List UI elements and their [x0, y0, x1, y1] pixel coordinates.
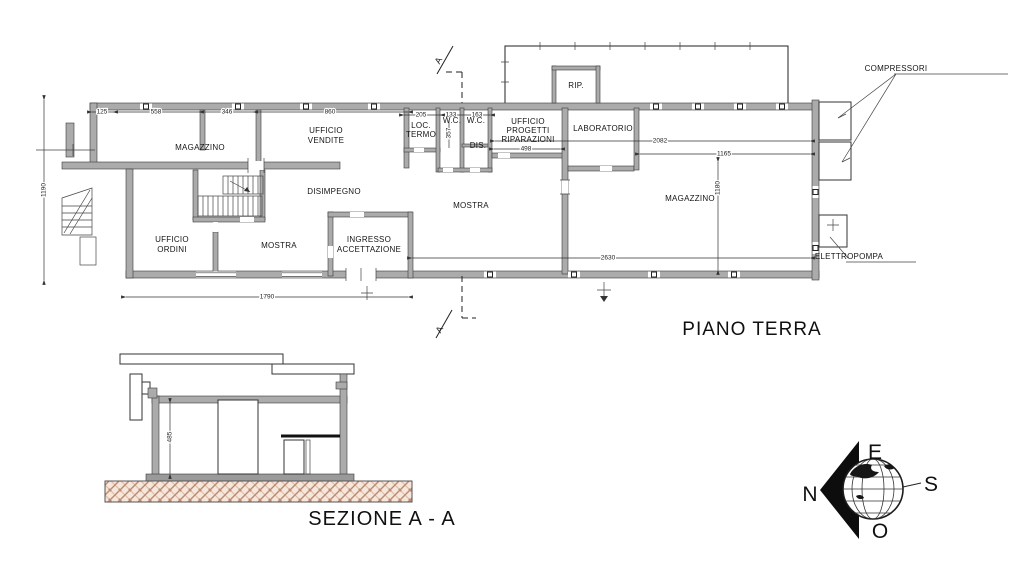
compass-globe	[843, 459, 921, 519]
dim-1180: 1180	[715, 181, 722, 195]
drawing-canvas: A A 125 558 346 860 205 133 163 357 498	[0, 0, 1024, 580]
survey-marks	[361, 282, 611, 302]
dim-1790: 1790	[260, 294, 275, 301]
section-cut-line: A A	[433, 46, 476, 338]
label-elettropompa: ELETTROPOMPA	[815, 252, 884, 261]
compass-east: E	[868, 441, 882, 464]
compass-west: O	[872, 520, 888, 543]
dim-2630: 2630	[601, 255, 616, 262]
dim-205: 205	[416, 112, 427, 119]
label-magazzino-right: MAGAZZINO	[665, 194, 715, 203]
label-magazzino-left: MAGAZZINO	[175, 143, 225, 152]
compass-north: N	[802, 483, 817, 506]
dim-125: 125	[97, 109, 108, 116]
section-title: SEZIONE A - A	[308, 508, 456, 530]
label-uff-progetti-1: UFFICIO	[511, 117, 545, 126]
dim-1190: 1190	[41, 183, 48, 197]
label-loc-termo-1: LOC.	[411, 121, 431, 130]
architectural-drawing: A A 125 558 346 860 205 133 163 357 498	[0, 0, 1024, 580]
label-uff-progetti-3: RIPARAZIONI	[501, 135, 554, 144]
label-laboratorio: LABORATORIO	[573, 124, 633, 133]
label-dis: DIS.	[470, 141, 487, 150]
section-drawing: 485 SEZIONE A - A	[105, 354, 456, 530]
label-ufficio-vendite-2: VENDITE	[308, 136, 344, 145]
section-interior: 485	[167, 400, 340, 474]
label-ingresso-1: INGRESSO	[347, 235, 391, 244]
compressori-boxes	[819, 74, 1008, 180]
label-ufficio-vendite-1: UFFICIO	[309, 126, 343, 135]
label-ufficio-ordini-2: ORDINI	[157, 245, 187, 254]
internal-stairs	[198, 176, 263, 216]
section-ground-hatch	[105, 481, 412, 502]
plan-title: PIANO TERRA	[682, 319, 821, 340]
label-rip: RIP.	[568, 81, 584, 90]
label-wc-1: W.C.	[443, 116, 461, 125]
label-ingresso-2: ACCETTAZIONE	[337, 245, 401, 254]
label-uff-progetti-2: PROGETTI	[507, 126, 550, 135]
floor-plan: A A 125 558 346 860 205 133 163 357 498	[36, 42, 1008, 340]
label-compressori: COMPRESSORI	[865, 64, 928, 73]
label-wc-2: W.C.	[467, 116, 485, 125]
label-mostra-left: MOSTRA	[261, 241, 297, 250]
compass-south: S	[924, 473, 938, 496]
dim-1165: 1165	[717, 151, 731, 158]
label-loc-termo-2: TERMO	[406, 130, 436, 139]
dim-498: 498	[521, 146, 532, 153]
dim-2082: 2082	[653, 138, 668, 145]
dim-558: 558	[151, 109, 162, 116]
canopy-outline	[501, 42, 788, 103]
label-ufficio-ordini-1: UFFICIO	[155, 235, 189, 244]
compass-rose: N E S O	[802, 441, 938, 543]
section-marker-bottom: A	[434, 324, 446, 334]
dim-485: 485	[167, 431, 174, 442]
label-mostra-center: MOSTRA	[453, 201, 489, 210]
dim-860: 860	[325, 109, 336, 116]
label-disimpegno: DISIMPEGNO	[307, 187, 361, 196]
dim-357: 357	[446, 127, 453, 138]
dim-346: 346	[222, 109, 233, 116]
